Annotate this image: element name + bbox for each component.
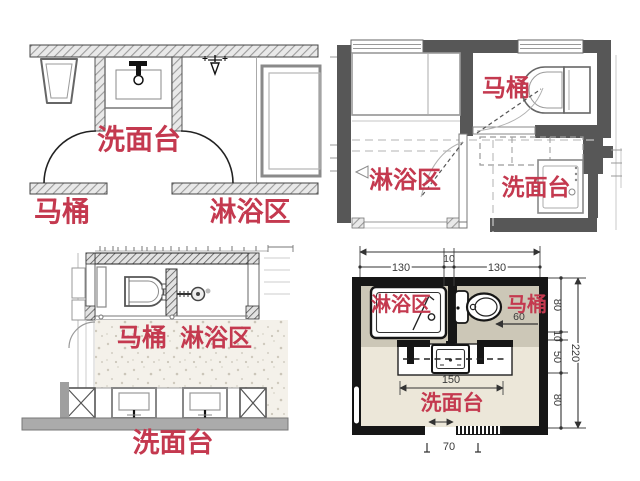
door-swing-arc-left bbox=[44, 131, 96, 183]
faucet-icon bbox=[129, 61, 147, 66]
triangle-marker-icon bbox=[356, 166, 368, 178]
label-washbasin: 洗面台 bbox=[421, 391, 484, 415]
label-toilet: 马桶 bbox=[117, 324, 167, 352]
cistern-fixture bbox=[41, 59, 77, 103]
label-washbasin: 洗面台 bbox=[97, 123, 181, 155]
column-box-right bbox=[240, 388, 266, 418]
dimension-tick-row bbox=[95, 245, 293, 252]
washbasin-fixture bbox=[105, 57, 172, 108]
room-edge-bottom bbox=[352, 218, 459, 228]
panel-top-left-plan: 洗面台 马桶 淋浴区 bbox=[30, 45, 320, 227]
label-shower: 淋浴区 bbox=[180, 325, 252, 352]
label-shower: 淋浴区 bbox=[371, 292, 431, 316]
label-shower: 淋浴区 bbox=[210, 197, 291, 227]
door-leaf bbox=[354, 386, 360, 424]
dim-top-left-width: 130 bbox=[392, 262, 410, 274]
dim-door-width: 70 bbox=[443, 441, 455, 453]
dim-top-gap: 10 bbox=[443, 253, 455, 265]
dim-right-seg1: 80 bbox=[551, 299, 563, 311]
wall-top bbox=[30, 45, 318, 57]
window-top-left bbox=[351, 40, 423, 53]
dim-vanity-width: 150 bbox=[442, 374, 460, 386]
label-washbasin: 洗面台 bbox=[502, 174, 571, 200]
dim-right-total: 220 bbox=[569, 344, 581, 362]
floorplan-collage: 洗面台 马桶 淋浴区 bbox=[0, 0, 640, 481]
window-top-right bbox=[518, 40, 583, 53]
dim-right-seg3: 50 bbox=[551, 351, 563, 363]
toilet-fixture bbox=[125, 277, 167, 306]
shower-area-fixture bbox=[262, 66, 320, 176]
faucet-icon bbox=[446, 341, 455, 346]
washbasin-fixture-2 bbox=[183, 388, 227, 421]
dim-top-right-width: 130 bbox=[488, 262, 506, 274]
wall-stub-left bbox=[95, 57, 105, 131]
door-swing-arc-right bbox=[181, 131, 233, 183]
panel-bottom-right-plan: 10 130 130 60 80 10 50 80 220 150 70 淋浴区… bbox=[352, 246, 586, 453]
threshold-stripes bbox=[458, 426, 502, 434]
wall-left-lower bbox=[60, 382, 69, 418]
wall-right bbox=[246, 253, 290, 319]
shower-partition bbox=[459, 134, 467, 228]
vanity-fixture bbox=[397, 340, 513, 375]
label-washbasin: 洗面台 bbox=[133, 427, 214, 458]
bathtub-fixture bbox=[352, 53, 460, 121]
column-box-left bbox=[67, 388, 95, 418]
dim-right-seg4: 80 bbox=[551, 394, 563, 406]
label-toilet: 马桶 bbox=[482, 75, 530, 102]
panel-bottom-left-plan: 马桶 淋浴区 洗面台 bbox=[22, 245, 293, 458]
dim-right-seg2: 10 bbox=[551, 330, 562, 342]
radiator-fixture bbox=[97, 267, 106, 307]
wall-stub-right bbox=[172, 57, 182, 131]
room-bottom-edge bbox=[95, 315, 248, 320]
wall-bottom-right bbox=[172, 183, 318, 194]
label-toilet: 马桶 bbox=[507, 292, 547, 316]
shower-head-icon bbox=[203, 55, 228, 74]
wall-top bbox=[93, 253, 259, 264]
door-swing-arc bbox=[69, 322, 95, 348]
label-toilet: 马桶 bbox=[34, 196, 90, 227]
label-shower: 淋浴区 bbox=[369, 167, 441, 194]
shower-head-icon bbox=[177, 288, 211, 301]
panel-top-right-plan: 马桶 淋浴区 洗面台 bbox=[330, 40, 622, 232]
toilet-fixture bbox=[455, 291, 501, 323]
wall-bottom-left bbox=[30, 183, 107, 194]
washbasin-fixture-1 bbox=[112, 388, 156, 421]
shower-partition-wall bbox=[166, 269, 177, 316]
